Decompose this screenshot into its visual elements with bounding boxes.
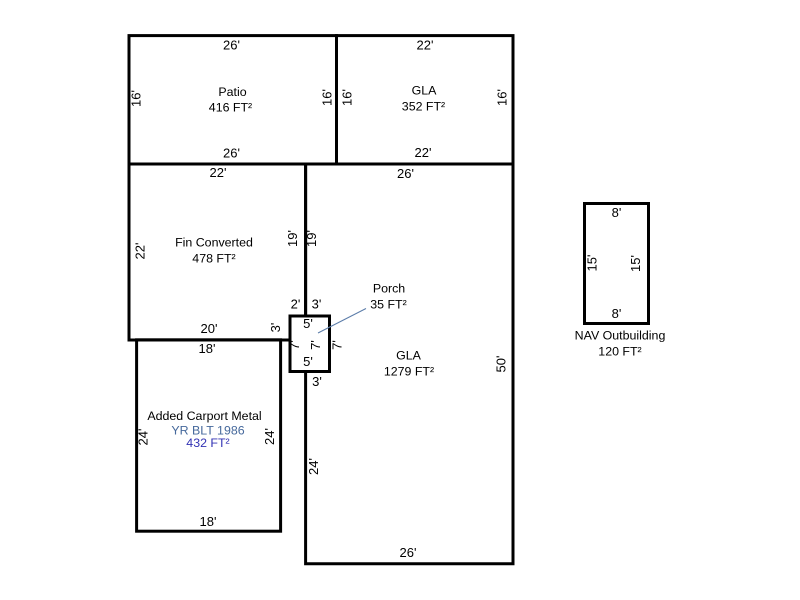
svg-text:18': 18' bbox=[200, 514, 217, 529]
svg-text:7': 7' bbox=[287, 340, 302, 350]
svg-text:Fin Converted: Fin Converted bbox=[175, 236, 253, 250]
svg-text:18': 18' bbox=[199, 341, 216, 356]
svg-text:5': 5' bbox=[303, 354, 313, 369]
svg-text:8': 8' bbox=[612, 306, 622, 321]
svg-text:3': 3' bbox=[268, 323, 283, 333]
svg-text:16': 16' bbox=[340, 89, 355, 106]
svg-text:NAV Outbuilding: NAV Outbuilding bbox=[575, 329, 666, 343]
svg-text:Patio: Patio bbox=[218, 85, 246, 99]
svg-text:22': 22' bbox=[415, 145, 432, 160]
svg-text:7': 7' bbox=[308, 340, 323, 350]
svg-text:35 FT²: 35 FT² bbox=[370, 298, 407, 312]
svg-text:24': 24' bbox=[262, 428, 277, 445]
svg-text:22': 22' bbox=[417, 38, 434, 53]
svg-text:Porch: Porch bbox=[373, 282, 405, 296]
svg-text:24': 24' bbox=[306, 458, 321, 475]
svg-text:8': 8' bbox=[612, 205, 622, 220]
svg-text:26': 26' bbox=[223, 146, 240, 161]
svg-text:5': 5' bbox=[303, 316, 313, 331]
svg-text:15': 15' bbox=[585, 255, 600, 272]
svg-text:50': 50' bbox=[494, 356, 509, 373]
svg-text:16': 16' bbox=[320, 89, 335, 106]
svg-text:16': 16' bbox=[129, 90, 144, 107]
svg-text:3': 3' bbox=[312, 297, 322, 312]
svg-text:19': 19' bbox=[304, 230, 319, 247]
svg-text:7': 7' bbox=[330, 340, 345, 350]
svg-text:GLA: GLA bbox=[412, 84, 438, 98]
svg-text:416 FT²: 416 FT² bbox=[209, 101, 252, 115]
svg-text:26': 26' bbox=[397, 166, 414, 181]
svg-text:19': 19' bbox=[285, 230, 300, 247]
svg-text:26': 26' bbox=[400, 545, 417, 560]
svg-text:432 FT²: 432 FT² bbox=[186, 436, 229, 450]
svg-text:2': 2' bbox=[291, 297, 301, 312]
svg-text:478 FT²: 478 FT² bbox=[192, 251, 235, 265]
svg-text:352 FT²: 352 FT² bbox=[402, 100, 445, 114]
svg-text:22': 22' bbox=[210, 165, 227, 180]
svg-text:26': 26' bbox=[223, 38, 240, 53]
svg-text:3': 3' bbox=[312, 374, 322, 389]
svg-text:16': 16' bbox=[495, 89, 510, 106]
svg-text:1279 FT²: 1279 FT² bbox=[384, 365, 434, 379]
svg-text:22': 22' bbox=[133, 243, 148, 260]
svg-text:20': 20' bbox=[201, 321, 218, 336]
svg-text:GLA: GLA bbox=[396, 349, 422, 363]
svg-text:120 FT²: 120 FT² bbox=[598, 345, 641, 359]
svg-text:24': 24' bbox=[136, 429, 151, 446]
svg-text:Added Carport Metal: Added Carport Metal bbox=[147, 409, 261, 423]
svg-text:15': 15' bbox=[628, 255, 643, 272]
